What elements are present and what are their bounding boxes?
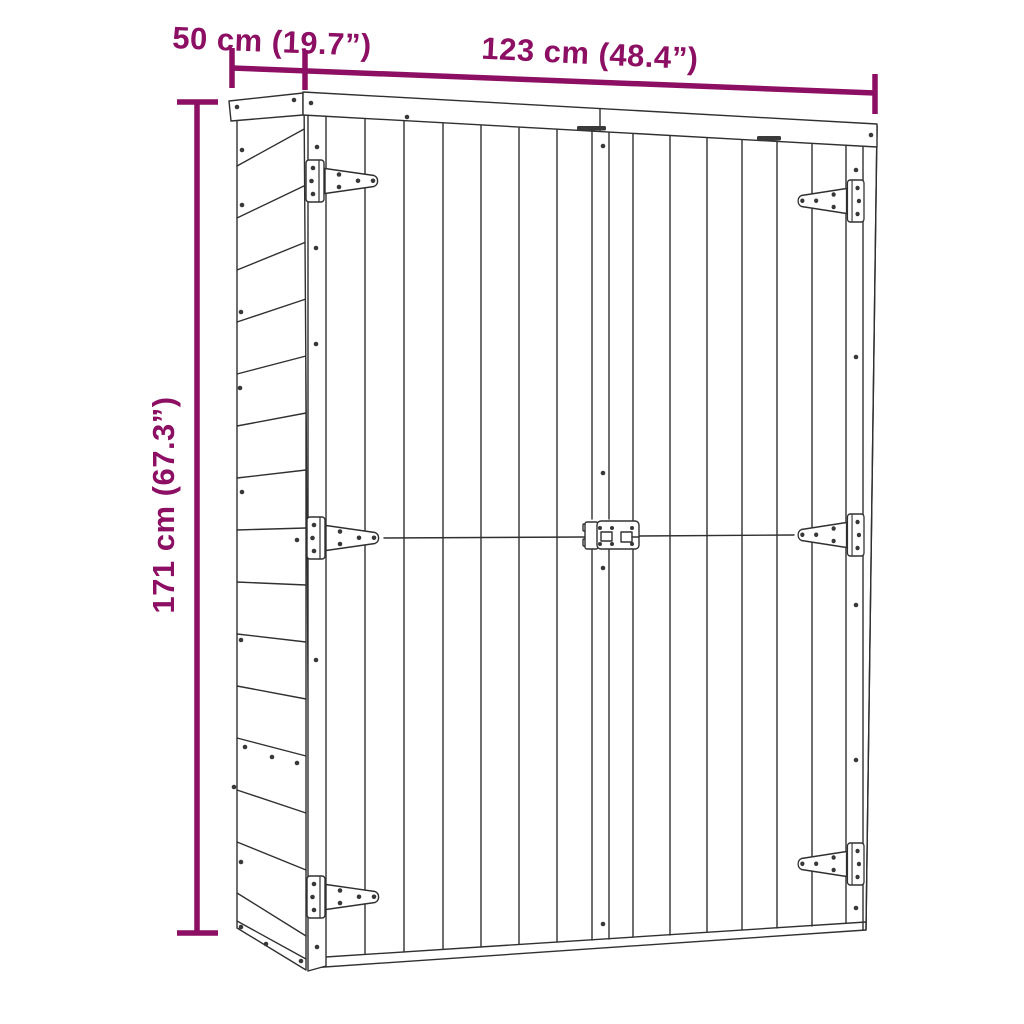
product-dimension-diagram: 50 cm (19.7”) 123 cm (48.4”) 171 cm (67.… [0,0,1024,1024]
width-dimension-label: 123 cm (48.4”) [481,31,700,77]
height-dimension-label: 171 cm (67.3”) [146,396,181,613]
shed-diagram-svg: 50 cm (19.7”) 123 cm (48.4”) 171 cm (67.… [0,0,1024,1024]
height-dimension-line [177,102,218,933]
shed-line-drawing [229,92,877,971]
side-wall [237,98,306,970]
door-latch [583,521,639,549]
depth-dimension-label: 50 cm (19.7”) [172,20,373,63]
